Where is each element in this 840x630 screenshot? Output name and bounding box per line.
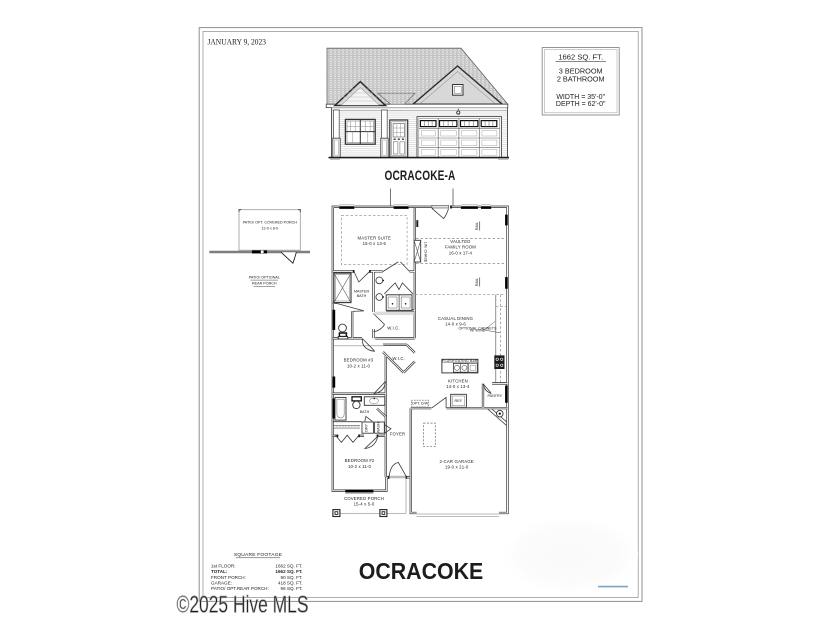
svg-text:10-2 x 11-0: 10-2 x 11-0 bbox=[347, 363, 371, 368]
svg-text:1662 SQ. FT.: 1662 SQ. FT. bbox=[558, 53, 603, 62]
svg-text:PATIO/ OPTIONAL: PATIO/ OPTIONAL bbox=[249, 276, 280, 280]
svg-text:1662 SQ. FT.: 1662 SQ. FT. bbox=[275, 563, 302, 568]
svg-text:WASH: WASH bbox=[376, 422, 380, 433]
svg-text:BATH: BATH bbox=[360, 410, 370, 414]
svg-text:TOTAL:: TOTAL: bbox=[211, 569, 228, 574]
svg-text:CASUAL DINING: CASUAL DINING bbox=[438, 316, 474, 321]
svg-text:1st FLOOR:: 1st FLOOR: bbox=[211, 563, 236, 568]
svg-text:VAULTED: VAULTED bbox=[450, 239, 470, 244]
svg-text:W.I.C.: W.I.C. bbox=[392, 356, 405, 361]
svg-text:DEPTH = 62'-0": DEPTH = 62'-0" bbox=[556, 101, 606, 108]
svg-text:REF.: REF. bbox=[455, 399, 463, 403]
svg-text:MASTER SUITE: MASTER SUITE bbox=[358, 236, 392, 241]
svg-text:FOYER: FOYER bbox=[390, 432, 406, 437]
svg-text:12-0 x 8-0: 12-0 x 8-0 bbox=[261, 226, 278, 230]
svg-text:FAMILY ROOM: FAMILY ROOM bbox=[445, 245, 476, 250]
svg-text:16-0 x 17-4: 16-0 x 17-4 bbox=[449, 250, 473, 255]
svg-text:15-4 x 5-0: 15-4 x 5-0 bbox=[354, 502, 375, 507]
svg-text:OPT. D/W: OPT. D/W bbox=[412, 402, 429, 406]
svg-text:W/ WINE: W/ WINE bbox=[470, 329, 486, 333]
svg-text:RAIL: RAIL bbox=[475, 278, 479, 286]
svg-text:JANUARY 9, 2023: JANUARY 9, 2023 bbox=[208, 37, 267, 47]
svg-text:LIN. CHASE: LIN. CHASE bbox=[424, 242, 428, 263]
svg-text:W.I.C.: W.I.C. bbox=[387, 325, 400, 330]
svg-text:©2025 Hive MLS: ©2025 Hive MLS bbox=[177, 591, 309, 618]
svg-text:2-CAR GARAGE: 2-CAR GARAGE bbox=[440, 459, 474, 464]
svg-text:19-0 x 21-0: 19-0 x 21-0 bbox=[445, 464, 469, 469]
svg-text:2 BATHROOM: 2 BATHROOM bbox=[557, 75, 605, 84]
svg-text:90 SQ. FT.: 90 SQ. FT. bbox=[281, 575, 303, 580]
svg-text:MASTER: MASTER bbox=[354, 290, 370, 294]
svg-text:15-0 x 13-6: 15-0 x 13-6 bbox=[363, 241, 387, 246]
svg-text:418 SQ. FT.: 418 SQ. FT. bbox=[278, 581, 303, 586]
svg-text:DRY: DRY bbox=[364, 423, 368, 431]
svg-text:1662 SQ. FT.: 1662 SQ. FT. bbox=[275, 569, 302, 574]
svg-text:OCRACOKE: OCRACOKE bbox=[359, 558, 484, 584]
svg-text:10-2 x 11-0: 10-2 x 11-0 bbox=[348, 464, 372, 469]
svg-text:REAR PORCH: REAR PORCH bbox=[252, 282, 277, 286]
svg-text:14-0 x 13-4: 14-0 x 13-4 bbox=[446, 384, 470, 389]
svg-text:SQUARE FOOTAGE: SQUARE FOOTAGE bbox=[234, 552, 283, 558]
svg-text:BEDROOM #2: BEDROOM #2 bbox=[345, 458, 375, 463]
svg-text:KITCHEN: KITCHEN bbox=[448, 379, 468, 384]
svg-text:WIDTH = 35'-0": WIDTH = 35'-0" bbox=[556, 94, 605, 101]
svg-text:BATH: BATH bbox=[357, 294, 367, 298]
svg-text:RAIL: RAIL bbox=[475, 222, 479, 230]
svg-text:BEDROOM #3: BEDROOM #3 bbox=[344, 358, 374, 363]
svg-text:PATIO/ OPT. COVERED PORCH: PATIO/ OPT. COVERED PORCH bbox=[243, 220, 298, 224]
svg-text:GARAGE:: GARAGE: bbox=[211, 581, 232, 586]
svg-text:COVERED PORCH: COVERED PORCH bbox=[344, 496, 384, 501]
svg-text:FLUSH EATING BAR: FLUSH EATING BAR bbox=[442, 359, 478, 363]
svg-text:OCRACOKE-A: OCRACOKE-A bbox=[385, 168, 456, 183]
svg-text:PANTRY: PANTRY bbox=[487, 394, 502, 398]
svg-text:FRONT PORCH:: FRONT PORCH: bbox=[211, 575, 246, 580]
